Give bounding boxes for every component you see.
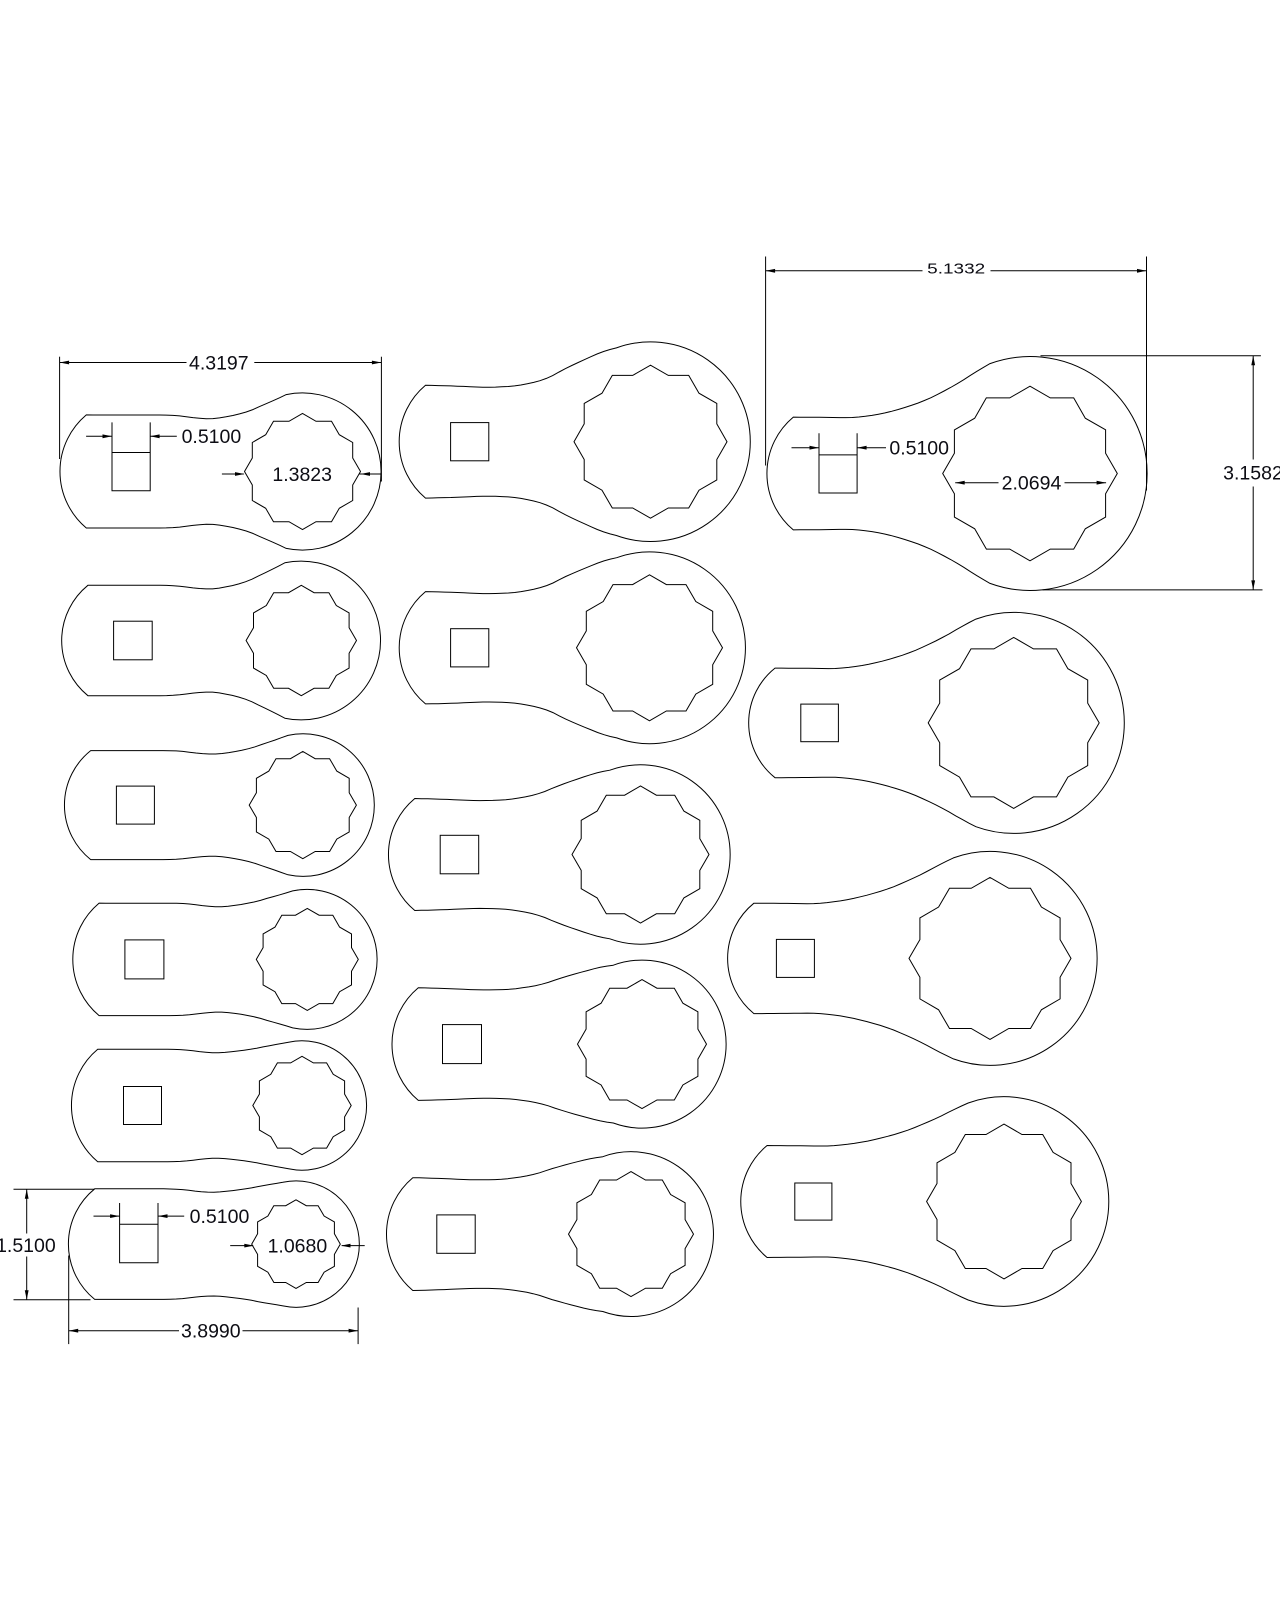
svg-text:3.8990: 3.8990 xyxy=(181,1321,241,1343)
svg-text:1.5100: 1.5100 xyxy=(0,1235,56,1257)
svg-text:3.1582: 3.1582 xyxy=(1223,463,1280,485)
svg-text:2.0694: 2.0694 xyxy=(1002,473,1062,495)
svg-text:1.0680: 1.0680 xyxy=(268,1235,328,1257)
svg-text:5.1332: 5.1332 xyxy=(927,261,985,277)
svg-text:4.3197: 4.3197 xyxy=(189,352,249,374)
svg-text:1.3823: 1.3823 xyxy=(272,464,332,486)
svg-text:0.5100: 0.5100 xyxy=(182,426,242,448)
svg-text:0.5100: 0.5100 xyxy=(190,1206,250,1228)
svg-text:0.5100: 0.5100 xyxy=(889,438,949,460)
